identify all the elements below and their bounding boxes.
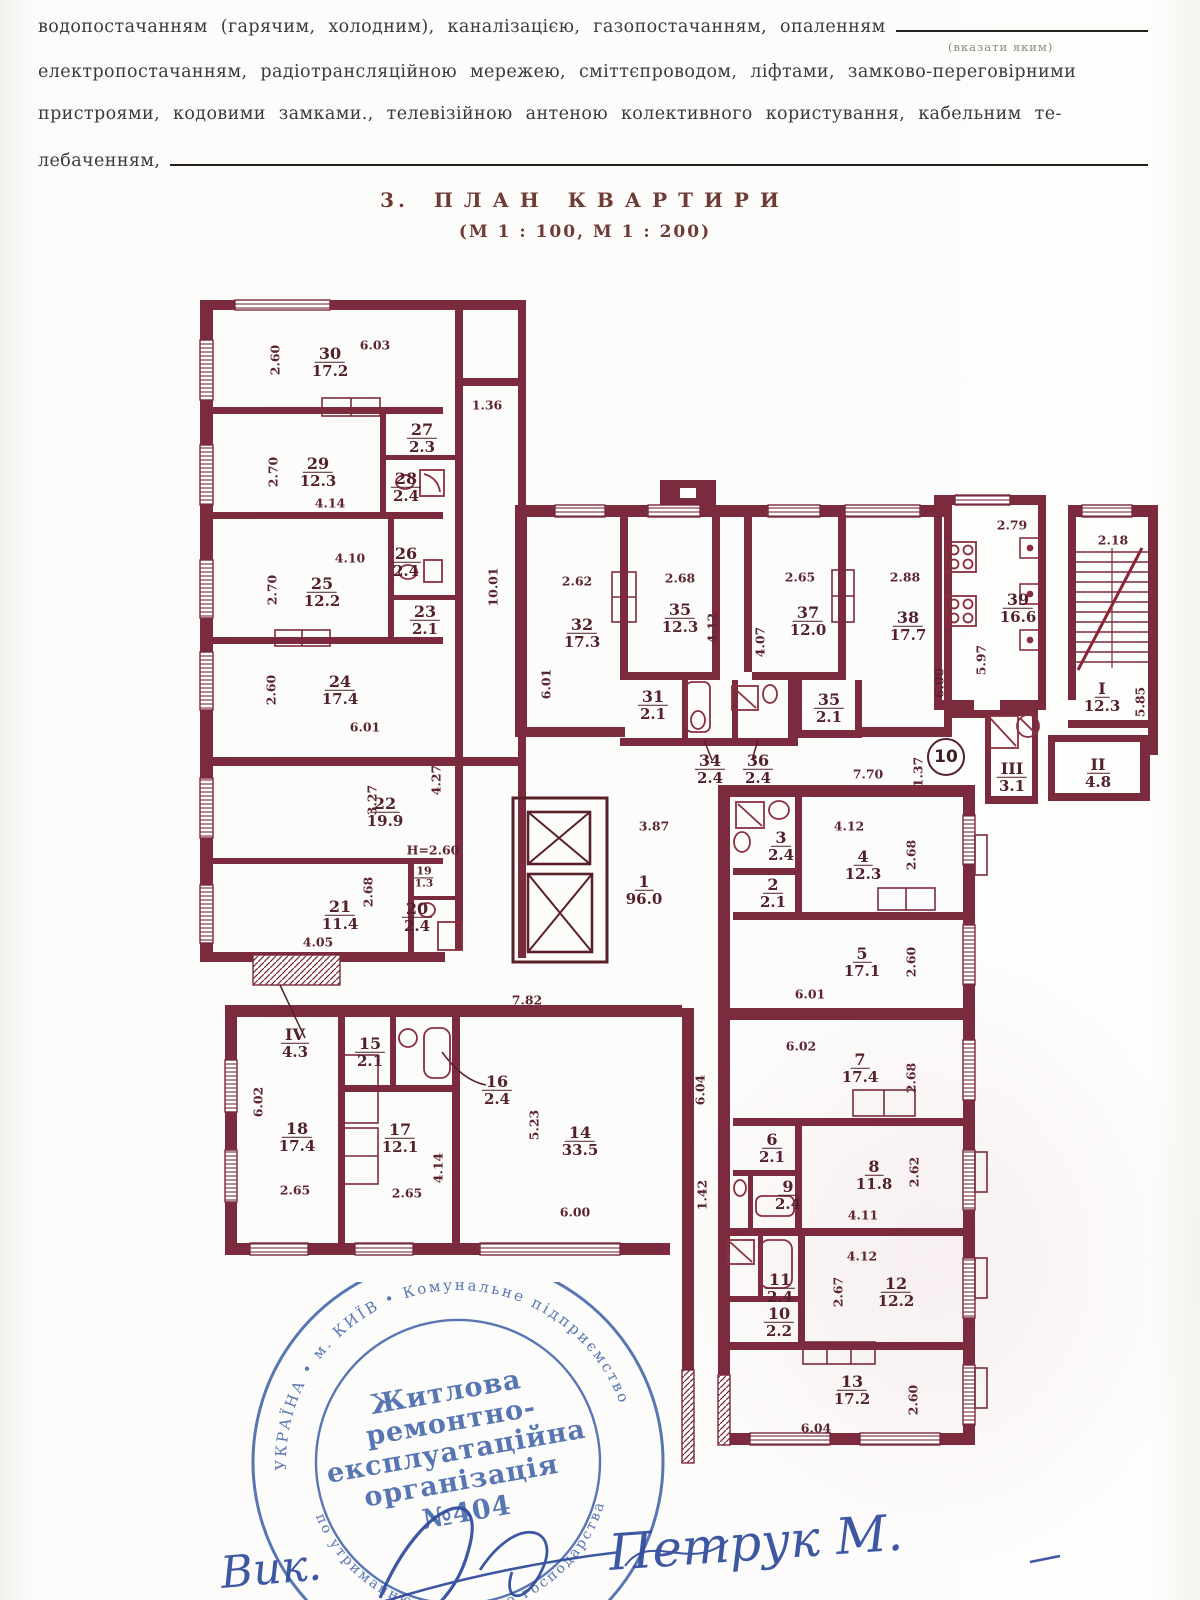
dimension-label: 2.65	[785, 570, 815, 585]
room-6-label: 62.1	[759, 1131, 785, 1165]
room-24-label: 2417.4	[322, 673, 359, 707]
blank-underline	[170, 146, 1148, 166]
room-20-label: 202.4	[402, 900, 432, 934]
room-23-label: 232.1	[410, 603, 440, 637]
dimension-label: 4.12	[705, 613, 720, 643]
room-12-label: 1212.2	[878, 1275, 915, 1309]
dimension-label: 2.62	[562, 574, 592, 589]
dimension-label: 7.70	[853, 767, 883, 782]
scanned-document-page: водопостачанням (гарячим, холодним), кан…	[0, 0, 1200, 1600]
room-36-label: 362.4	[743, 752, 773, 786]
dimension-label: Н=2.60	[407, 843, 460, 858]
header-line-2-text: електропостачанням, радіотрансляційною м…	[38, 62, 1076, 82]
dimension-label: 6.04	[693, 1075, 708, 1105]
dimension-label: 2.70	[265, 575, 280, 605]
header-line-1-note: (вказати яким)	[948, 40, 1053, 54]
room-32-label: 3217.3	[564, 616, 601, 650]
dimension-label: 2.65	[392, 1186, 422, 1201]
room-38-label: 3817.7	[890, 609, 927, 643]
header-line-4-text: лебаченням,	[38, 151, 160, 171]
room-15-label: 152.1	[355, 1035, 385, 1069]
room-34-label: 342.4	[695, 752, 725, 786]
room-4-label: 412.3	[845, 848, 882, 882]
header-line-3-text: пристроями, кодовими замками., телевізій…	[38, 104, 1062, 124]
dimension-label: 2.70	[266, 457, 281, 487]
dimension-label: 4.27	[429, 765, 444, 795]
dimension-label: 2.60	[906, 1385, 921, 1415]
dimension-label: 2.88	[890, 570, 920, 585]
room-2-label: 22.1	[760, 876, 786, 910]
dimension-label: 6.00	[560, 1205, 590, 1220]
header-line-3: пристроями, кодовими замками., телевізій…	[38, 104, 1148, 124]
dimension-label: 2.68	[665, 571, 695, 586]
dimension-label: 2.68	[904, 1063, 919, 1093]
room-16-label: 162.4	[482, 1073, 512, 1107]
dimension-label: 7.82	[512, 993, 542, 1008]
room-8-label: 811.8	[856, 1158, 893, 1192]
dimension-label: 2.65	[280, 1183, 310, 1198]
dimension-label: 2.18	[1098, 533, 1128, 548]
room-9-label: 92.4	[775, 1178, 801, 1212]
dimension-label: 4.05	[303, 935, 333, 950]
section-number: 3.	[380, 188, 409, 212]
building-number-badge: 10	[927, 738, 965, 776]
dimension-label: 2.67	[831, 1277, 846, 1307]
room-14-label: 1433.5	[562, 1124, 599, 1158]
dimension-label: 2.62	[907, 1157, 922, 1187]
signature: Вик. Петрук М.	[180, 1470, 1100, 1600]
dimension-label: 6.01	[539, 669, 554, 699]
section-title: 3. ПЛАН КВАРТИРИ	[0, 188, 1170, 212]
dimension-label: 3.27	[365, 785, 380, 815]
room-30-label: 3017.2	[312, 345, 349, 379]
dimension-label: 1.37	[911, 757, 926, 787]
room-35-label: 3512.3	[662, 601, 699, 635]
dimension-label: 2.60	[268, 345, 283, 375]
dimension-label: 3.87	[639, 819, 669, 834]
room-II-label: II4.8	[1085, 756, 1111, 790]
dimension-label: 6.02	[786, 1039, 816, 1054]
dimension-label: 5.23	[527, 1110, 542, 1140]
dimension-label: 4.07	[753, 627, 768, 657]
room-37-label: 3712.0	[790, 604, 827, 638]
dimension-label: 6.04	[801, 1421, 831, 1436]
dimension-label: 2.68	[904, 840, 919, 870]
dimension-label: 4.14	[315, 496, 345, 511]
dimension-label: 2.60	[904, 947, 919, 977]
room-35-label: 352.1	[814, 691, 844, 725]
room-III-label: III3.1	[997, 760, 1027, 794]
room-13-label: 1317.2	[834, 1373, 871, 1407]
header-line-4: лебаченням,	[38, 146, 1148, 171]
dimension-label: 5.85	[1133, 687, 1148, 717]
room-31-label: 312.1	[638, 688, 668, 722]
room-21-label: 2111.4	[322, 898, 359, 932]
room-29-label: 2912.3	[300, 455, 337, 489]
signature-prefix: Вик.	[218, 1539, 324, 1599]
room-25-label: 2512.2	[304, 575, 341, 609]
header-line-1: водопостачанням (гарячим, холодним), кан…	[38, 12, 1148, 37]
header-line-1-text: водопостачанням (гарячим, холодним), кан…	[38, 17, 886, 37]
header-line-2: електропостачанням, радіотрансляційною м…	[38, 62, 1148, 82]
room-IV-label: IV4.3	[281, 1026, 309, 1060]
dimension-label: 6.01	[350, 720, 380, 735]
room-18-label: 1817.4	[279, 1120, 316, 1154]
section-scale: (М 1 : 100, М 1 : 200)	[0, 222, 1170, 242]
room-27-label: 272.3	[407, 421, 437, 455]
room-17-label: 1712.1	[382, 1121, 419, 1155]
room-10-label: 102.2	[764, 1305, 794, 1339]
room-5-label: 517.1	[844, 945, 881, 979]
room-3-label: 32.4	[768, 829, 794, 863]
room-28-label: 282.4	[391, 470, 421, 504]
section-title-text: ПЛАН КВАРТИРИ	[434, 188, 790, 212]
room-26-label: 262.4	[391, 545, 421, 579]
dimension-label: 1.42	[695, 1180, 710, 1210]
blank-underline	[896, 12, 1148, 32]
dimension-label: 2.79	[997, 518, 1027, 533]
dimension-label: 2.60	[264, 675, 279, 705]
dimension-label: 6.01	[795, 987, 825, 1002]
room-39-label: 3916.6	[1000, 591, 1037, 625]
dimension-label: 4.10	[335, 551, 365, 566]
dimension-label: 4.14	[431, 1153, 446, 1183]
room-7-label: 717.4	[842, 1051, 879, 1085]
dimension-label: 4.12	[834, 819, 864, 834]
room-19-label: 191.3	[414, 860, 433, 889]
room-1-label: 196.0	[626, 873, 663, 907]
dimension-label: 2.68	[361, 877, 376, 907]
dimension-label: 4.11	[848, 1208, 878, 1223]
room-11-label: 112.4	[765, 1271, 795, 1305]
dimension-label: 1.36	[472, 398, 502, 413]
signature-name: Петрук М.	[606, 1504, 905, 1582]
dimension-label: 4.12	[847, 1249, 877, 1264]
dimension-label: 6.03	[360, 338, 390, 353]
dimension-label: 6.00	[932, 668, 947, 698]
room-I-label: I12.3	[1084, 680, 1121, 714]
dimension-label: 10.01	[486, 567, 501, 606]
dimension-label: 5.97	[974, 645, 989, 675]
dimension-label: 6.02	[251, 1087, 266, 1117]
